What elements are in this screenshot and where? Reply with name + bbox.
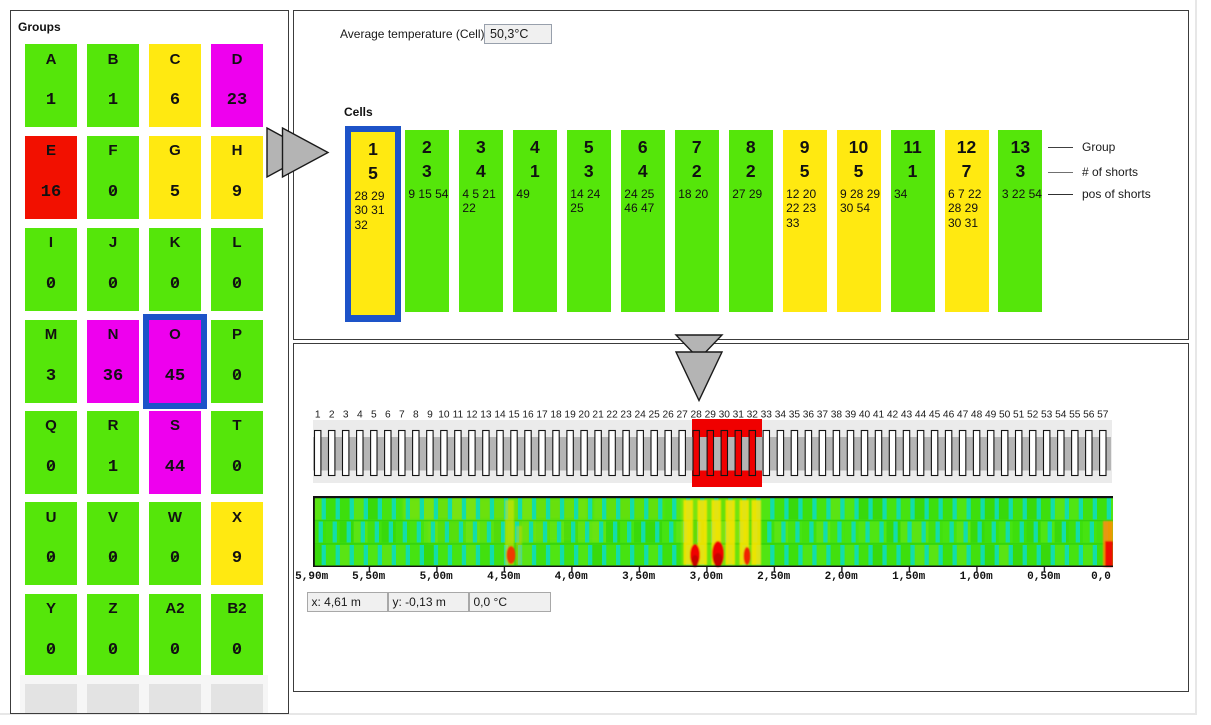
svg-text:26: 26 [663,410,675,421]
svg-text:19: 19 [564,410,576,421]
svg-text:12: 12 [466,410,478,421]
svg-text:10: 10 [438,410,450,421]
svg-text:30: 30 [719,410,731,421]
svg-text:32: 32 [747,410,759,421]
svg-text:5: 5 [371,410,377,421]
svg-text:55: 55 [1069,410,1081,421]
svg-text:25: 25 [649,410,661,421]
svg-text:7: 7 [399,410,405,421]
svg-text:13: 13 [480,410,492,421]
svg-text:21: 21 [592,410,604,421]
svg-text:4: 4 [357,410,363,421]
svg-text:31: 31 [733,410,745,421]
svg-text:8: 8 [413,410,419,421]
svg-text:49: 49 [985,410,997,421]
svg-text:39: 39 [845,410,857,421]
svg-text:15: 15 [508,410,520,421]
svg-text:54: 54 [1055,410,1067,421]
svg-text:53: 53 [1041,410,1053,421]
svg-text:28: 28 [691,410,703,421]
svg-text:6: 6 [385,410,391,421]
svg-text:11: 11 [453,410,464,421]
svg-text:46: 46 [943,410,955,421]
svg-text:44: 44 [915,410,927,421]
svg-text:16: 16 [522,410,534,421]
svg-text:2: 2 [329,410,335,421]
svg-text:24: 24 [635,410,647,421]
svg-text:23: 23 [620,410,632,421]
svg-text:22: 22 [606,410,618,421]
svg-text:51: 51 [1013,410,1025,421]
svg-text:33: 33 [761,410,773,421]
svg-text:48: 48 [971,410,983,421]
svg-text:9: 9 [427,410,433,421]
svg-text:36: 36 [803,410,815,421]
svg-text:42: 42 [887,410,899,421]
svg-text:45: 45 [929,410,941,421]
svg-text:38: 38 [831,410,843,421]
svg-text:52: 52 [1027,410,1039,421]
svg-text:43: 43 [901,410,913,421]
svg-text:50: 50 [999,410,1011,421]
svg-text:47: 47 [957,410,969,421]
svg-text:27: 27 [677,410,689,421]
svg-text:18: 18 [550,410,562,421]
svg-text:14: 14 [494,410,506,421]
svg-text:29: 29 [705,410,717,421]
svg-text:41: 41 [873,410,885,421]
svg-text:35: 35 [789,410,801,421]
svg-text:37: 37 [817,410,829,421]
svg-text:34: 34 [775,410,787,421]
svg-text:57: 57 [1097,410,1109,421]
svg-text:20: 20 [578,410,590,421]
svg-text:17: 17 [536,410,548,421]
svg-text:1: 1 [315,410,321,421]
svg-text:40: 40 [859,410,871,421]
svg-text:3: 3 [343,410,349,421]
svg-text:56: 56 [1083,410,1095,421]
